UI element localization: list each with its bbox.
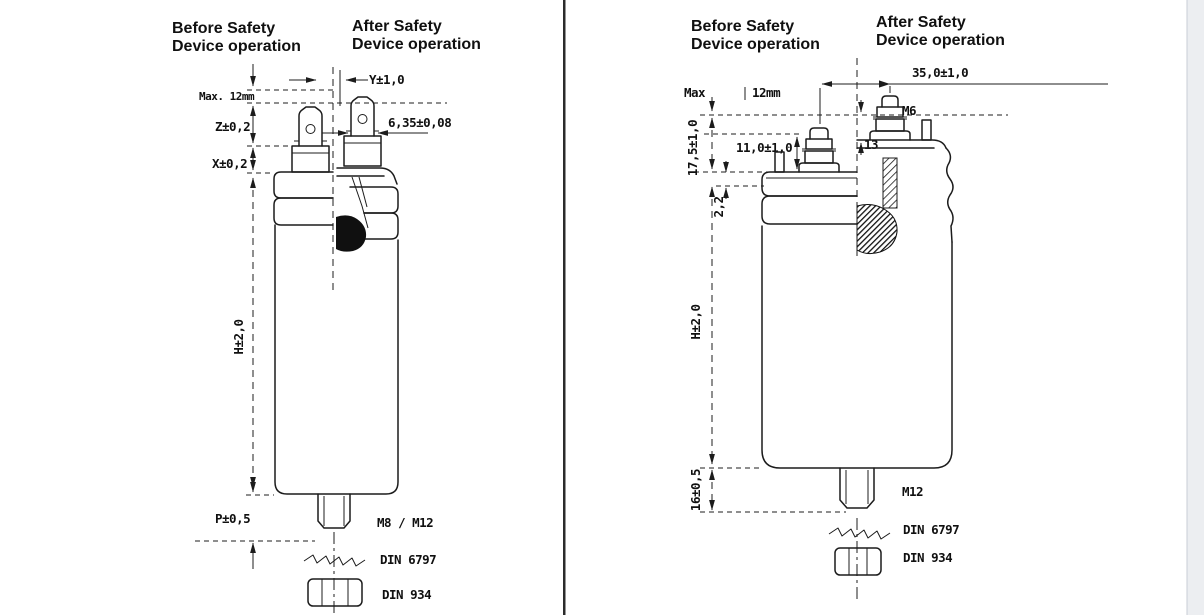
panel-right-drawing: Before Safety Device operation After Saf… xyxy=(684,14,1108,600)
right-before-title-line1: Before Safety xyxy=(691,18,794,35)
right-dim-h-label: H±2,0 xyxy=(688,304,703,339)
right-dim-rim-label: 2,2 xyxy=(711,196,726,217)
left-nut-label: DIN 934 xyxy=(382,587,431,602)
left-vent-blob xyxy=(336,215,366,251)
right-vent-blob xyxy=(857,205,897,254)
right-dim-span-label: 35,0±1,0 xyxy=(912,65,968,80)
right-lock-washer-icon xyxy=(829,528,890,539)
right-dim-bottom-label: 16±0,5 xyxy=(688,469,703,511)
left-dim-max-label: Max. 12mm xyxy=(199,90,255,103)
right-dim-lid-label: 17,5±1,0 xyxy=(685,120,700,176)
right-before-terminal xyxy=(799,128,839,172)
right-thread-label: M12 xyxy=(902,484,923,499)
left-before-title-line2: Device operation xyxy=(172,38,301,55)
left-dim-y-label: Y±1,0 xyxy=(369,72,404,87)
left-washer-label: DIN 6797 xyxy=(380,552,436,567)
right-after-title-line2: Device operation xyxy=(876,32,1005,49)
left-dim-tab-width-label: 6,35±0,08 xyxy=(388,115,451,130)
right-nut-label: DIN 934 xyxy=(903,550,952,565)
datasheet-page: Before Safety Device operation After Saf… xyxy=(0,0,1204,615)
right-vent-slot-hatch xyxy=(883,158,897,208)
capacitor-dimension-drawings: Before Safety Device operation After Saf… xyxy=(0,0,1204,615)
right-m6-label: M6 xyxy=(902,103,916,118)
panel-divider xyxy=(563,0,566,615)
right-washer-label: DIN 6797 xyxy=(903,522,959,537)
left-hex-nut-icon xyxy=(308,579,362,606)
right-dim-max-word: Max xyxy=(684,85,706,100)
page-margin xyxy=(1187,0,1204,615)
right-after-title-line1: After Safety xyxy=(876,14,966,31)
right-dim-max-value: 12mm xyxy=(752,85,781,100)
left-before-title-line1: Before Safety xyxy=(172,20,275,37)
left-dim-z-label: Z±0,2 xyxy=(215,119,250,134)
panel-left-drawing: Before Safety Device operation After Saf… xyxy=(172,18,481,614)
left-stud xyxy=(318,494,350,528)
left-after-title-line2: Device operation xyxy=(352,36,481,53)
left-capacitor-body xyxy=(274,168,398,494)
left-dim-x-label: X±0,2 xyxy=(212,156,247,171)
left-before-terminal xyxy=(292,107,329,172)
left-dim-p-label: P±0,5 xyxy=(215,511,250,526)
left-after-title-line1: After Safety xyxy=(352,18,442,35)
left-thread-label: M8 / M12 xyxy=(377,515,433,530)
right-hex-nut-icon xyxy=(835,548,881,575)
right-stud xyxy=(840,468,874,508)
right-before-title-line2: Device operation xyxy=(691,36,820,53)
left-after-terminal xyxy=(344,97,381,166)
left-dim-h-label: H±2,0 xyxy=(231,319,246,354)
